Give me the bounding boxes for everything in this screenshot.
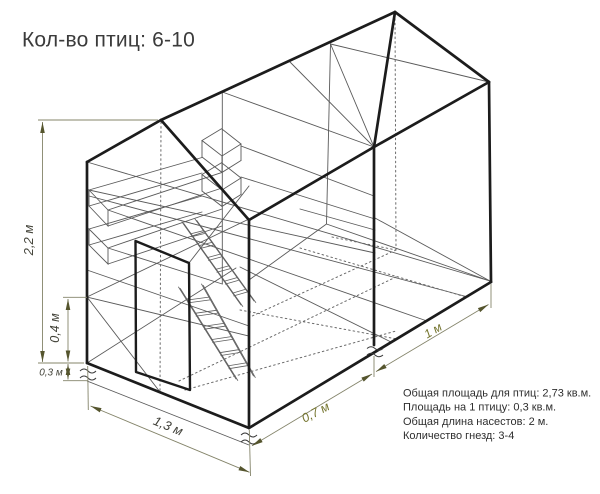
svg-text:0,3 м: 0,3 м xyxy=(39,368,63,379)
svg-text:1,3 м: 1,3 м xyxy=(151,413,185,439)
svg-text:0,7 м: 0,7 м xyxy=(299,399,332,425)
svg-text:Кол-во птиц: 6-10: Кол-во птиц: 6-10 xyxy=(22,29,195,52)
svg-text:Общая площадь для птиц: 2,73 к: Общая площадь для птиц: 2,73 кв.м. xyxy=(403,388,591,400)
svg-text:2,2 м: 2,2 м xyxy=(21,225,36,257)
svg-text:0,4 м: 0,4 м xyxy=(48,313,62,343)
svg-text:Общая длина насестов: 2 м.: Общая длина насестов: 2 м. xyxy=(403,416,548,428)
svg-text:Площадь на 1 птицу: 0,3 кв.м.: Площадь на 1 птицу: 0,3 кв.м. xyxy=(403,402,556,414)
svg-text:Количество гнезд: 3-4: Количество гнезд: 3-4 xyxy=(403,430,514,442)
